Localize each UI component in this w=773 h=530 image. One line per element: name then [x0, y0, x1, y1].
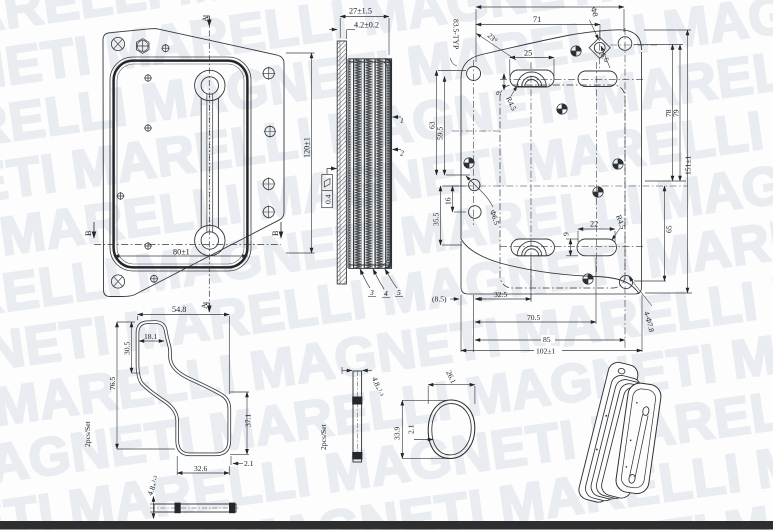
- svg-text:37.1: 37.1: [244, 414, 253, 427]
- svg-text:(8.5): (8.5): [432, 295, 447, 304]
- svg-text:59.5: 59.5: [436, 127, 445, 140]
- svg-text:B: B: [84, 230, 93, 236]
- svg-text:18.1: 18.1: [144, 332, 157, 341]
- svg-text:1: 1: [400, 116, 404, 125]
- svg-text:9: 9: [494, 91, 503, 95]
- svg-text:25: 25: [524, 49, 532, 58]
- svg-text:120±1: 120±1: [303, 137, 312, 158]
- svg-text:2.1: 2.1: [407, 424, 416, 434]
- svg-text:22: 22: [590, 220, 598, 229]
- svg-text:102±1: 102±1: [536, 347, 556, 356]
- svg-text:71: 71: [533, 15, 541, 24]
- svg-text:0.4: 0.4: [324, 194, 333, 204]
- svg-text:30.5: 30.5: [123, 342, 132, 355]
- svg-text:76.5: 76.5: [108, 377, 117, 390]
- svg-text:16: 16: [444, 197, 453, 205]
- svg-text:B: B: [271, 230, 280, 236]
- svg-text:9: 9: [562, 232, 571, 236]
- svg-text:32.6: 32.6: [194, 464, 207, 473]
- svg-text:A: A: [201, 16, 210, 22]
- svg-text:33.9: 33.9: [393, 427, 402, 440]
- svg-text:35.5: 35.5: [432, 213, 441, 226]
- svg-text:2pcs/Set: 2pcs/Set: [319, 423, 328, 450]
- svg-text:80±1: 80±1: [173, 248, 190, 257]
- svg-text:A: A: [200, 303, 209, 309]
- svg-text:2pcs/Set: 2pcs/Set: [83, 420, 92, 447]
- svg-text:65: 65: [665, 225, 674, 233]
- svg-text:4: 4: [384, 289, 388, 298]
- svg-text:2: 2: [400, 149, 404, 158]
- svg-text:151±1: 151±1: [684, 155, 693, 175]
- svg-text:27±1.5: 27±1.5: [349, 7, 372, 16]
- svg-text:85: 85: [543, 335, 551, 344]
- svg-text:32.5: 32.5: [494, 290, 507, 299]
- svg-text:54.8: 54.8: [172, 305, 186, 314]
- svg-text:3: 3: [369, 288, 374, 297]
- svg-text:4.2±0.2: 4.2±0.2: [354, 21, 379, 30]
- svg-text:70.5: 70.5: [527, 313, 540, 322]
- svg-text:5: 5: [397, 288, 401, 297]
- svg-text:2.1: 2.1: [244, 459, 254, 468]
- svg-text:78: 78: [664, 109, 673, 117]
- svg-text:83.5-TYP: 83.5-TYP: [452, 19, 461, 49]
